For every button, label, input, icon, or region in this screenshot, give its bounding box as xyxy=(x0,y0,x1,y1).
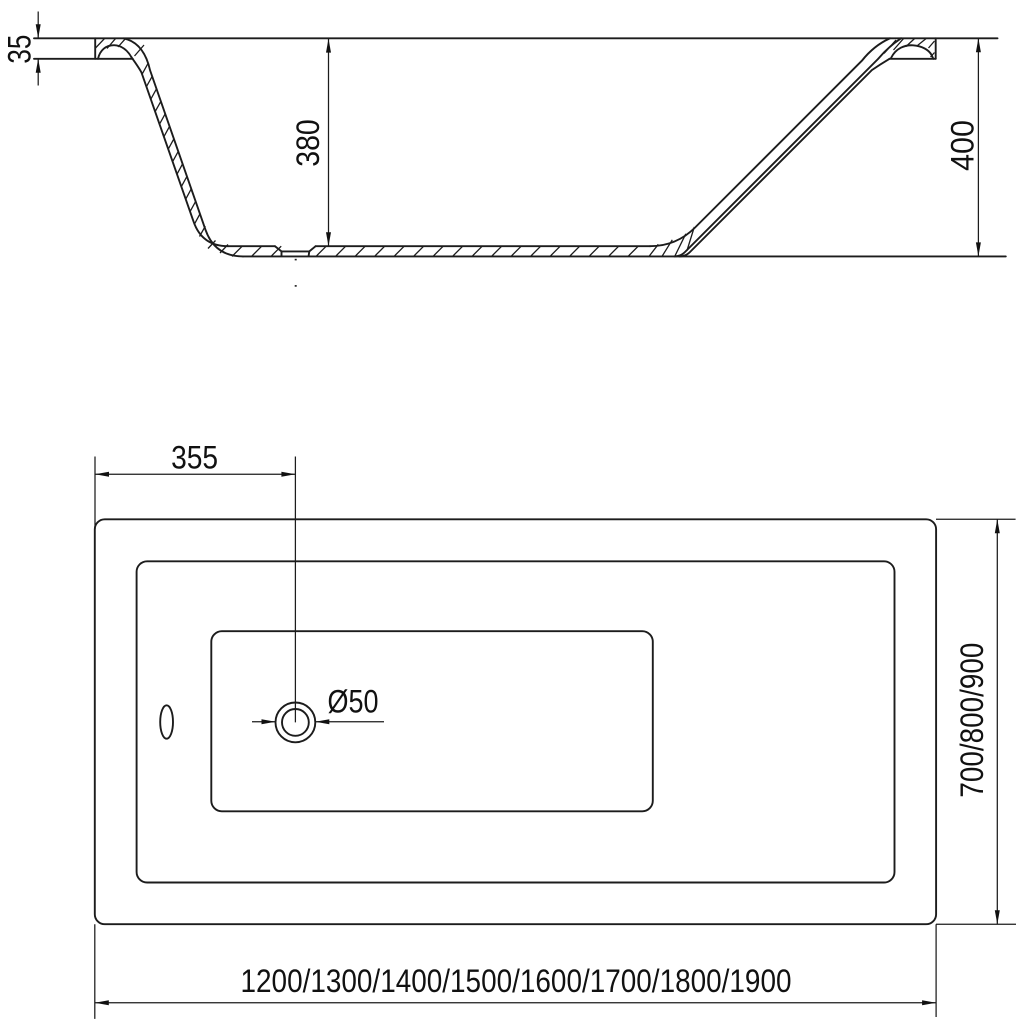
svg-text:35: 35 xyxy=(2,35,38,64)
svg-text:Ø50: Ø50 xyxy=(328,684,379,720)
svg-text:400: 400 xyxy=(944,120,980,171)
svg-text:1200/1300/1400/1500/1600/1700/: 1200/1300/1400/1500/1600/1700/1800/1900 xyxy=(241,963,792,999)
svg-text:700/800/900: 700/800/900 xyxy=(954,643,990,798)
svg-text:380: 380 xyxy=(290,119,326,167)
svg-text:355: 355 xyxy=(171,439,218,475)
